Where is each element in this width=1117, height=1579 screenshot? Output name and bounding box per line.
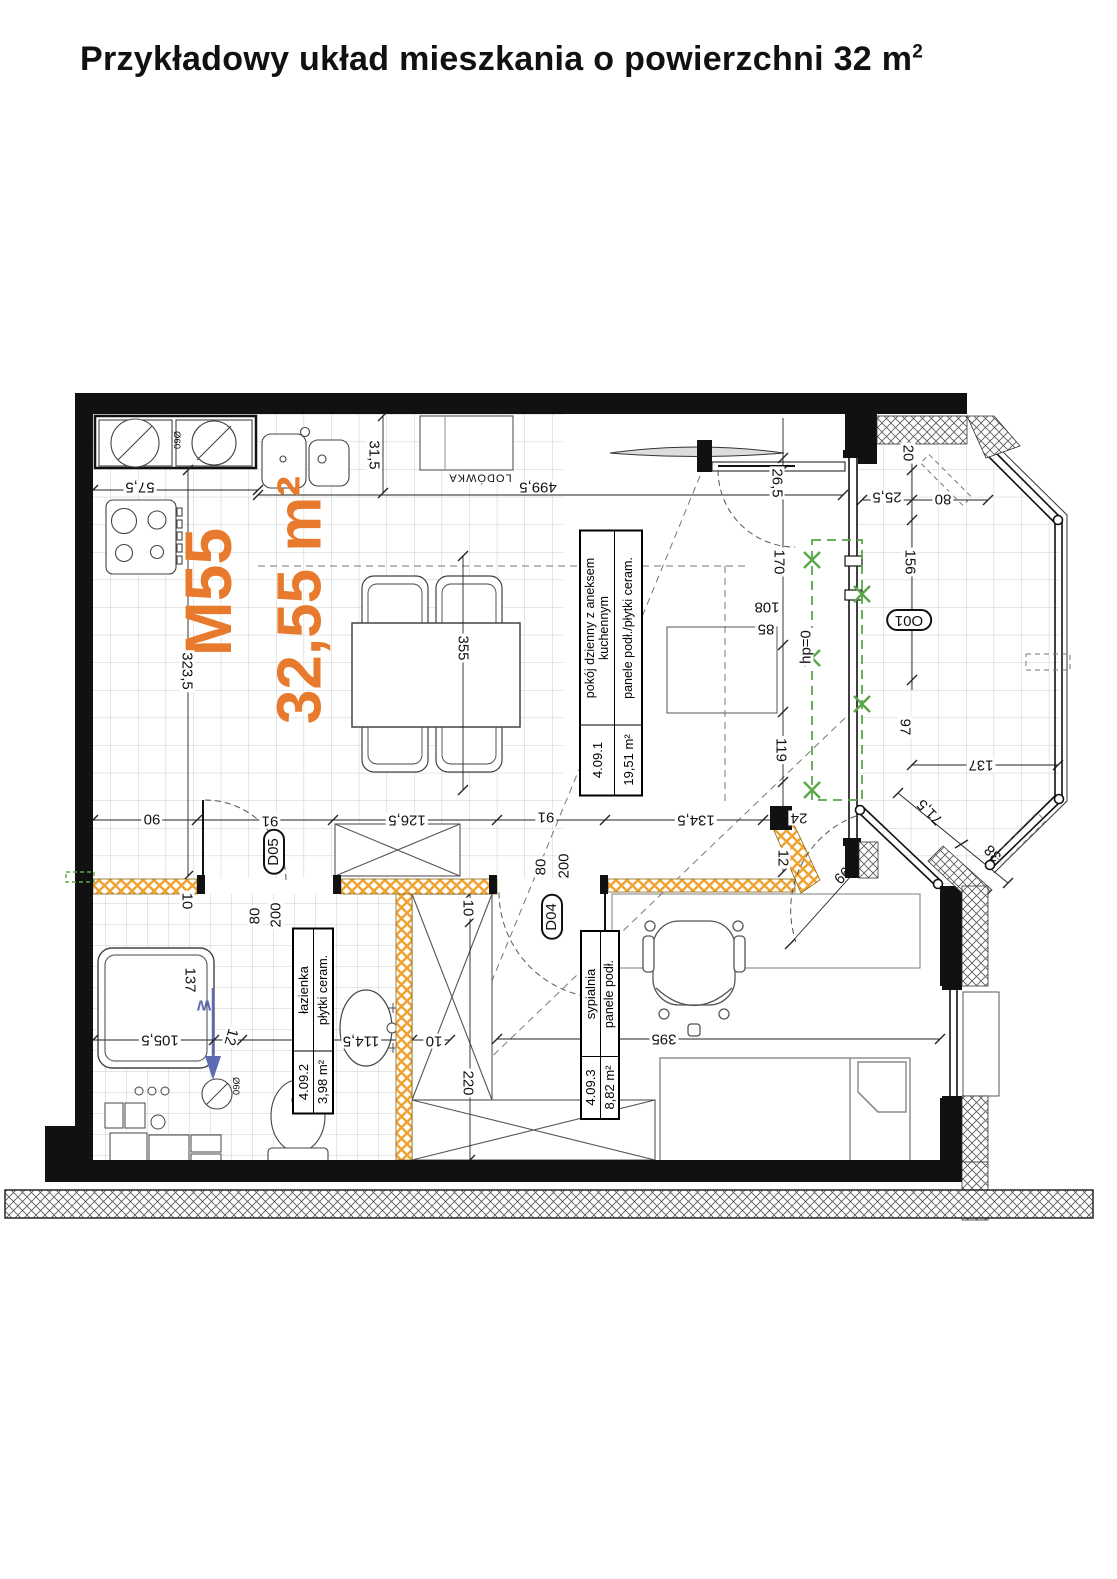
room-name: kuchennym bbox=[598, 596, 612, 660]
diameter-label: Ø60 bbox=[171, 429, 181, 451]
dim-label: 91 bbox=[536, 810, 557, 825]
dim-label: 114,5 bbox=[341, 1034, 381, 1049]
door-size-label: 80 bbox=[248, 906, 263, 927]
floor-plan-drawing bbox=[0, 0, 1117, 1579]
dim-label: 26,5 bbox=[770, 466, 785, 499]
dim-label: 80 bbox=[933, 492, 954, 507]
dim-label: 85 bbox=[756, 622, 777, 637]
room-area: 8,82 m² bbox=[601, 1057, 619, 1118]
room-label-living: 4.09.1 19,51 m² pokój dzienny z aneksem … bbox=[579, 530, 643, 797]
room-name: pokój dzienny z aneksem bbox=[584, 558, 598, 698]
dim-label: 31,5 bbox=[367, 438, 382, 471]
door-size-label: 200 bbox=[557, 851, 572, 880]
unit-area-label: 32,55 m² bbox=[265, 476, 336, 724]
room-area: 19,51 m² bbox=[615, 726, 641, 795]
room-finish: panele podł. bbox=[601, 932, 619, 1056]
door-size-label: 80 bbox=[534, 857, 549, 878]
room-area: 3,98 m² bbox=[314, 1052, 333, 1113]
dim-label: 323,5 bbox=[180, 650, 195, 692]
dim-label: 97 bbox=[898, 717, 913, 738]
tiled-floor-areas bbox=[93, 414, 1060, 1160]
washbasin-icon bbox=[340, 990, 392, 1066]
door-size-label: 200 bbox=[269, 900, 284, 929]
parapet-label: hp=0 bbox=[799, 628, 814, 666]
dim-label: 91 bbox=[260, 814, 281, 829]
window-tag-o01: O01 bbox=[886, 609, 932, 631]
vent-label: W bbox=[195, 998, 213, 1013]
door-tag-d05: D05 bbox=[263, 829, 285, 875]
door-tag-d04: D04 bbox=[541, 894, 563, 940]
dim-label: 137 bbox=[966, 758, 995, 773]
dim-label: 105,5 bbox=[139, 1033, 181, 1048]
dim-label: 220 bbox=[461, 1068, 476, 1097]
dim-label: 10 bbox=[461, 898, 476, 919]
bed-icon bbox=[660, 1058, 910, 1168]
dim-label: 24 bbox=[789, 811, 810, 826]
dim-label: 10 bbox=[424, 1034, 445, 1049]
dim-label: 20 bbox=[901, 443, 916, 464]
dining-set bbox=[352, 576, 520, 772]
dim-label: 10 bbox=[180, 891, 195, 912]
room-finish: płytki ceram. bbox=[314, 930, 333, 1051]
room-label-bedroom: 4.09.3 8,82 m² sypialnia panele podł. bbox=[580, 930, 620, 1120]
dim-label: 57,5 bbox=[123, 480, 156, 495]
dim-label: 90 bbox=[142, 812, 163, 827]
room-code: 4.09.2 bbox=[294, 1052, 314, 1113]
dim-label: 499,5 bbox=[517, 480, 559, 495]
dim-label: 119 bbox=[774, 736, 789, 764]
room-code: 4.09.1 bbox=[581, 726, 615, 795]
dim-label: 134,5 bbox=[675, 813, 717, 828]
floor-plan-page: Przykładowy układ mieszkania o powierzch… bbox=[0, 0, 1117, 1579]
room-name: łazienka bbox=[294, 930, 314, 1051]
diameter-label: Ø60 bbox=[230, 1075, 240, 1097]
dim-label: 156 bbox=[903, 547, 918, 576]
room-finish: panele podł./płytki ceram. bbox=[615, 532, 641, 725]
room-label-bathroom: 4.09.2 3,98 m² łazienka płytki ceram. bbox=[292, 928, 334, 1115]
dim-label: 170 bbox=[772, 547, 787, 576]
office-chair-icon bbox=[643, 921, 745, 1036]
dim-label: 355 bbox=[456, 633, 471, 662]
room-name: sypialnia bbox=[582, 932, 601, 1056]
dim-label: 137 bbox=[183, 965, 198, 994]
dim-label: 395 bbox=[649, 1032, 678, 1047]
room-code: 4.09.3 bbox=[582, 1057, 601, 1118]
dim-label: 25,5 bbox=[870, 490, 903, 505]
dim-label: 12 bbox=[776, 848, 791, 869]
dim-label: 126,5 bbox=[386, 813, 428, 828]
fridge-label: LODÓWKA bbox=[446, 472, 513, 483]
unit-code-label: M55 bbox=[170, 528, 246, 656]
dim-label: 108 bbox=[752, 600, 781, 615]
